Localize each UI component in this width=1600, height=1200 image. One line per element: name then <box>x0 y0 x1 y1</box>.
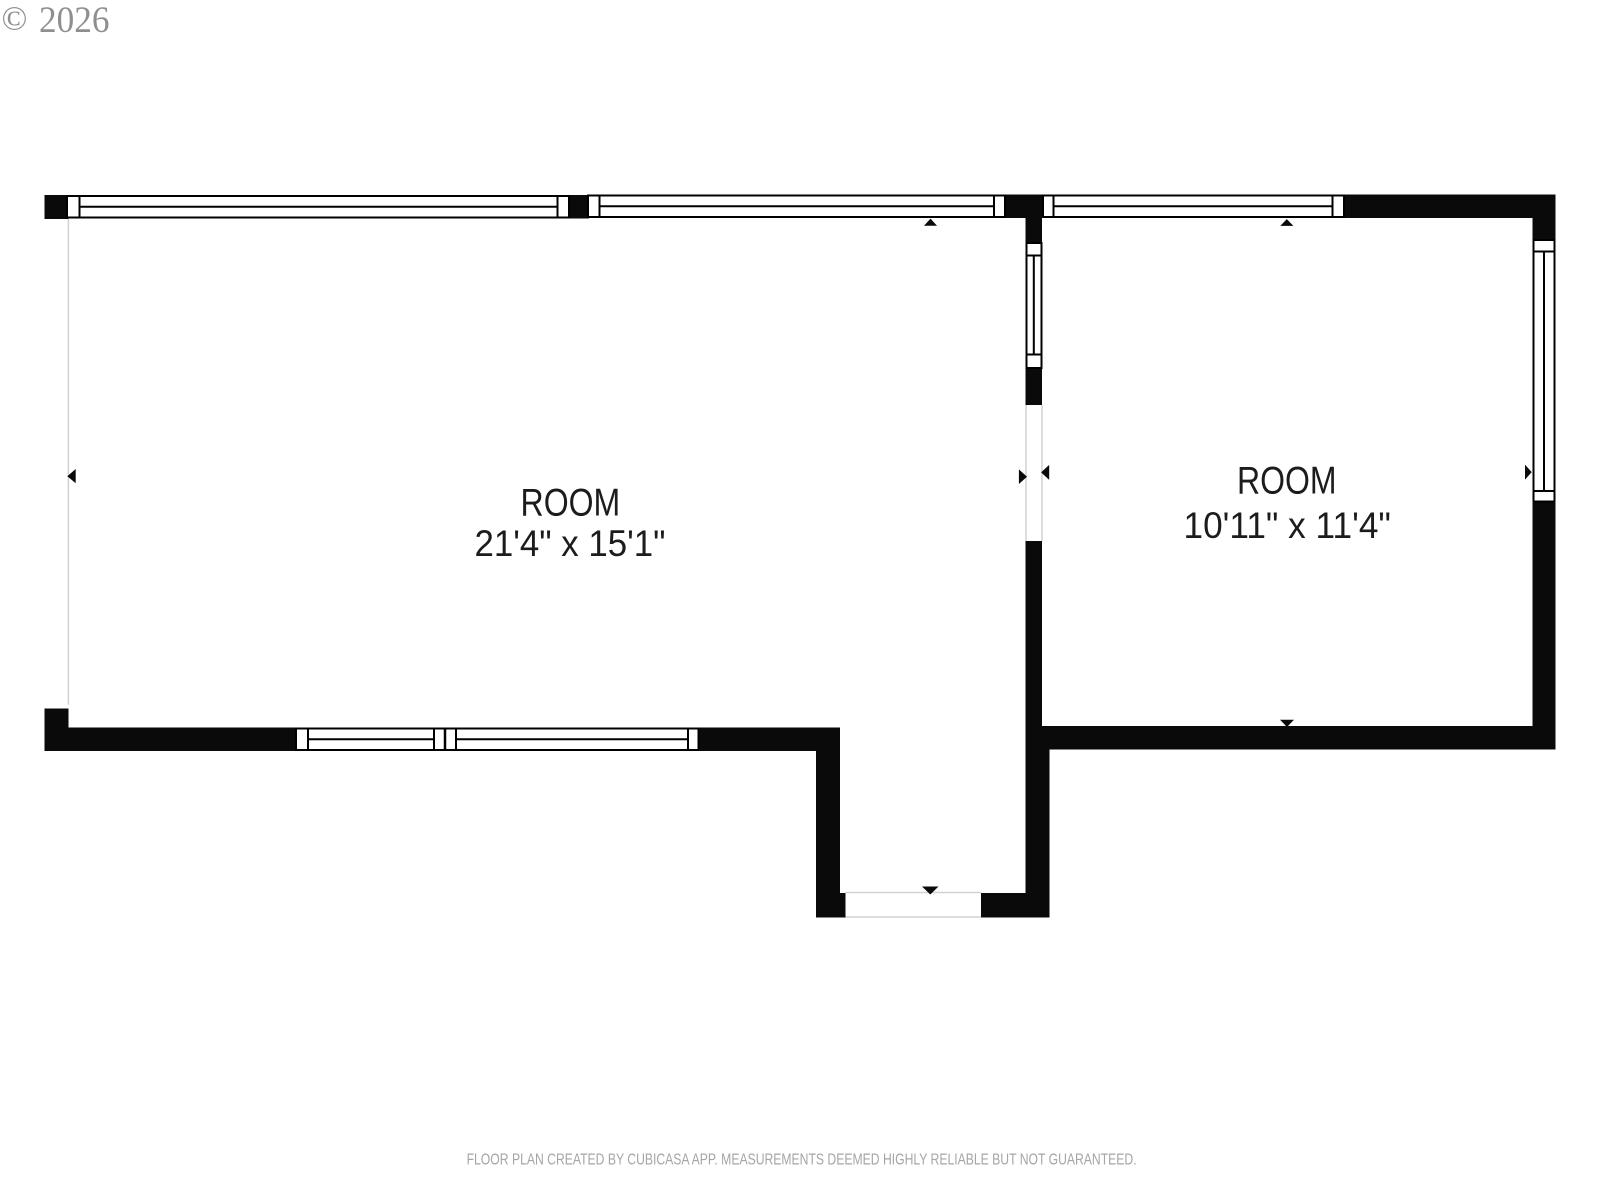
svg-text:2026: 2026 <box>39 0 110 41</box>
svg-text:ROOM: ROOM <box>1237 459 1337 502</box>
svg-text:FLOOR PLAN CREATED BY CUBICASA: FLOOR PLAN CREATED BY CUBICASA APP. MEAS… <box>467 1152 1137 1169</box>
svg-text:ROOM: ROOM <box>521 481 621 524</box>
svg-text:21'4" x 15'1": 21'4" x 15'1" <box>475 522 666 564</box>
svg-text:©: © <box>2 1 28 38</box>
svg-text:10'11" x 11'4": 10'11" x 11'4" <box>1184 504 1391 546</box>
